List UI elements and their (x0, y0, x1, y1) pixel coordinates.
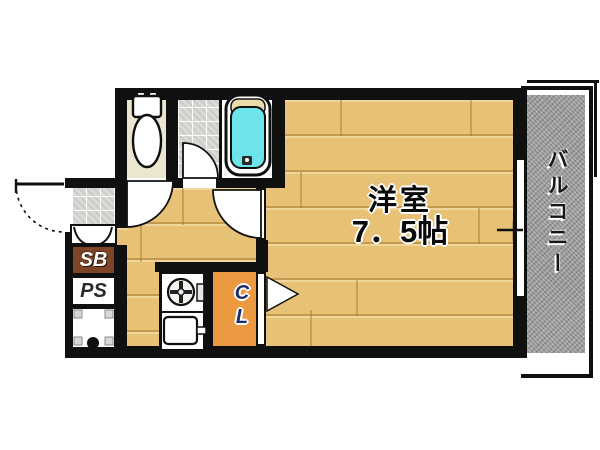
floor-seam (340, 100, 342, 136)
floor-seam (470, 100, 472, 136)
wall (219, 100, 222, 178)
room-door-leaf (256, 188, 266, 240)
wall (115, 88, 127, 228)
balcony-railing (589, 86, 593, 378)
genkan-step-box (70, 224, 117, 245)
closet-door-leaf (256, 272, 266, 346)
wall (65, 346, 527, 358)
wall (166, 178, 183, 188)
kitchen-unit-divider (160, 311, 205, 313)
entrance-door-swing (16, 179, 64, 232)
main-room-label: 洋室 7．5帖 (308, 186, 492, 249)
genkan-tile (72, 182, 115, 225)
balcony-label: バルコニー (539, 148, 571, 348)
balcony-railing (521, 86, 593, 90)
closet-label: CL (219, 282, 253, 340)
balcony-railing-shadow (594, 80, 597, 177)
floor-seam (300, 172, 302, 208)
washing-machine-pan-icon (70, 306, 117, 350)
balcony-railing-shadow (527, 80, 599, 83)
room-size: 7．5帖 (308, 216, 492, 249)
floor-seam (356, 280, 358, 316)
bathtub-alcove (222, 100, 272, 178)
room-name: 洋室 (308, 186, 492, 216)
shoe-box-label: SB (70, 244, 117, 276)
bathroom-tile-floor (178, 100, 219, 178)
floorplan: 洋室 7．5帖 バルコニー CL SB PS (0, 0, 600, 450)
floor-seam (182, 188, 184, 225)
sliding-window (517, 160, 524, 296)
toilet-room-floor (127, 100, 166, 178)
floor-seam (140, 225, 142, 262)
balcony-railing (521, 374, 593, 378)
pipe-shaft-label: PS (70, 275, 117, 307)
wall (166, 88, 178, 188)
wall (205, 272, 213, 346)
floor-seam (310, 310, 312, 346)
wall (272, 88, 285, 188)
